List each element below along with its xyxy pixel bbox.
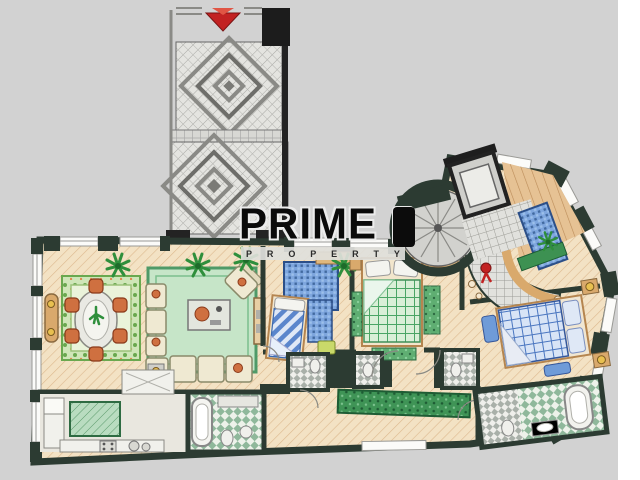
subtitle-letter: R bbox=[267, 249, 274, 259]
watermark-subtitle: P R O P E R T Y bbox=[241, 247, 405, 260]
bathtub-inner bbox=[196, 404, 208, 440]
pillow bbox=[562, 300, 582, 326]
coffee-table-item bbox=[210, 320, 221, 325]
subtitle-letter: E bbox=[331, 249, 337, 259]
vestibule-wall-block bbox=[262, 8, 290, 46]
master-bathroom bbox=[475, 376, 607, 447]
kids-small-rug bbox=[308, 300, 332, 342]
bathroom1-vanity bbox=[218, 396, 258, 407]
coffee-table-item bbox=[216, 306, 222, 312]
kitchen-fridge bbox=[44, 398, 64, 414]
scan-margin bbox=[618, 0, 640, 480]
watermark-title: PRIME bbox=[239, 202, 377, 246]
wc-1 bbox=[288, 354, 328, 390]
bathroom1-toilet bbox=[221, 430, 233, 446]
subtitle-letter: P bbox=[310, 249, 316, 259]
living-room bbox=[146, 248, 265, 382]
wc-toilet bbox=[451, 363, 461, 377]
runner-rug bbox=[338, 390, 471, 418]
kitchen-sink bbox=[129, 441, 139, 451]
kitchen-stove bbox=[100, 441, 116, 452]
floor-plan-image: PRIME P R O P E R T Y bbox=[0, 0, 640, 480]
bedside-rug bbox=[352, 292, 362, 336]
apartment bbox=[30, 138, 620, 462]
entrance-arrow bbox=[206, 8, 240, 31]
console-ornament bbox=[48, 329, 55, 336]
subtitle-letter: O bbox=[288, 249, 295, 259]
console-ornament bbox=[48, 301, 55, 308]
subtitle-letter: R bbox=[352, 249, 359, 259]
subtitle-letter: Y bbox=[394, 249, 400, 259]
trim-stud bbox=[476, 293, 482, 299]
pillow bbox=[365, 260, 390, 277]
wc-sink bbox=[292, 358, 304, 367]
subtitle-letter: P bbox=[246, 249, 252, 259]
subtitle-letter: T bbox=[374, 249, 380, 259]
wc-3 bbox=[442, 350, 478, 388]
coffee-table-bowl bbox=[195, 307, 209, 321]
wc-toilet bbox=[310, 359, 320, 373]
kitchen-island bbox=[70, 402, 120, 436]
trim-stud bbox=[469, 281, 476, 288]
watermark-logo-mark bbox=[393, 207, 415, 247]
bathroom1-sink bbox=[240, 426, 252, 438]
window-bottom-wall bbox=[362, 440, 426, 450]
vestibule-border-band bbox=[172, 130, 286, 142]
bathroom-1 bbox=[188, 392, 264, 452]
kitchen-sink bbox=[142, 443, 150, 451]
pillow bbox=[566, 327, 586, 353]
wc-2 bbox=[354, 353, 382, 387]
kids-bed bbox=[266, 295, 308, 361]
wc-sink bbox=[462, 354, 473, 363]
bedside-rug bbox=[424, 286, 440, 334]
